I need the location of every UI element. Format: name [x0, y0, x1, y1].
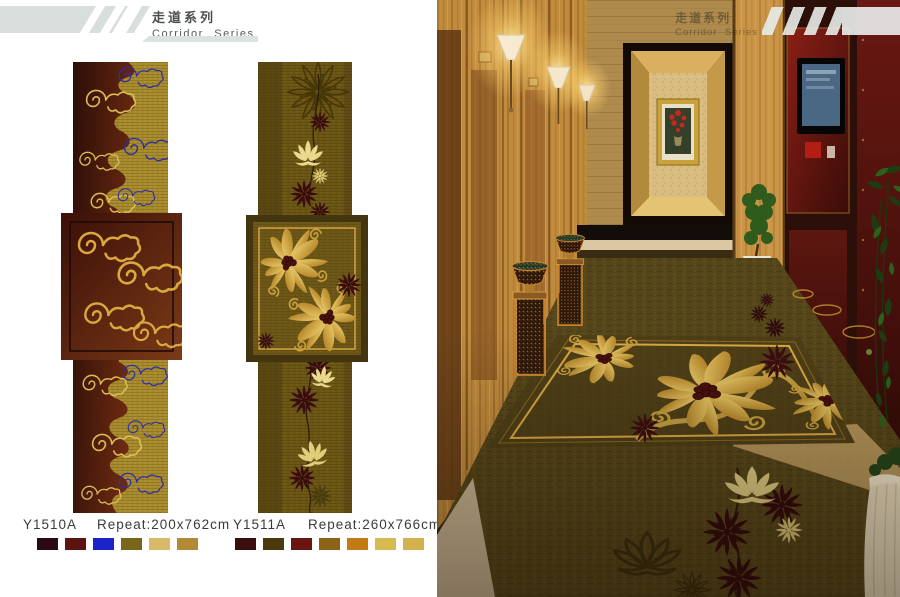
- series-title-zh: 走道系列: [152, 7, 254, 26]
- header-banner: [0, 6, 128, 33]
- swatch-row: [235, 538, 424, 550]
- banner-stripe: [100, 6, 125, 33]
- color-swatch: [121, 538, 142, 550]
- overlay-banner-stripes: [762, 7, 842, 35]
- color-swatch: [177, 538, 198, 550]
- header-banner-tail: [126, 6, 150, 33]
- swatch-row: [37, 538, 198, 550]
- color-swatch: [347, 538, 368, 550]
- header-underline: [142, 36, 258, 42]
- corridor-photo: [437, 0, 900, 597]
- product-code: Y1511A: [233, 517, 286, 532]
- color-swatch: [37, 538, 58, 550]
- photo-vignette: [437, 0, 900, 597]
- product-code: Y1510A: [23, 517, 77, 532]
- carpet-detail-y1511a: [246, 215, 368, 362]
- repeat-size: Repeat:200x762cm: [97, 517, 230, 532]
- color-swatch: [375, 538, 396, 550]
- color-swatch: [93, 538, 114, 550]
- carpet-detail-y1510a: [61, 213, 182, 360]
- overlay-banner-solid: [842, 7, 900, 35]
- color-swatch: [291, 538, 312, 550]
- color-swatch: [319, 538, 340, 550]
- repeat-size: Repeat:260x766cm: [308, 517, 441, 532]
- color-swatch: [403, 538, 424, 550]
- color-swatch: [149, 538, 170, 550]
- overlay-title-zh: 走道系列: [675, 9, 758, 26]
- color-swatch: [65, 538, 86, 550]
- overlay-title-en: Corridor Series: [675, 27, 758, 38]
- color-swatch: [235, 538, 256, 550]
- color-swatch: [263, 538, 284, 550]
- catalog-page: 走道系列 Corridor Series: [0, 0, 900, 597]
- corridor-photo-frame: 走道系列 Corridor Series: [437, 0, 900, 597]
- photo-overlay-banner: [762, 7, 900, 35]
- photo-overlay-title: 走道系列 Corridor Series: [675, 9, 758, 38]
